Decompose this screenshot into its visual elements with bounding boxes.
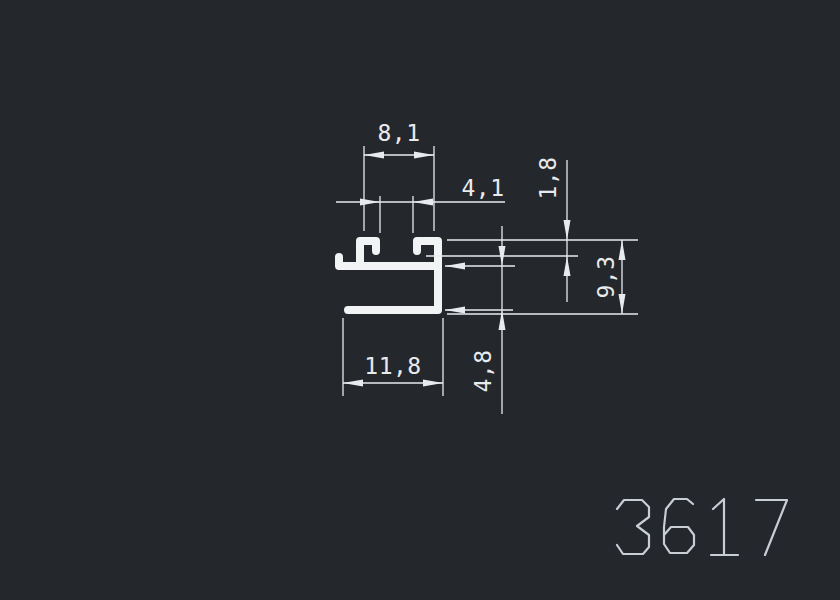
arrowhead-right-icon	[414, 152, 434, 159]
dimension-slot-opening: 4,1	[336, 175, 505, 233]
arrowhead-up-icon	[499, 310, 506, 330]
arrowhead-left-icon	[343, 380, 363, 387]
arrowhead-left-icon	[445, 263, 465, 270]
dim-label-overall-width: 11,8	[364, 353, 421, 379]
arrowhead-up-icon	[564, 256, 571, 276]
arrowhead-down-icon	[564, 220, 571, 240]
dim-label-slot-inner-width: 8,1	[377, 120, 420, 146]
profile-number-digit	[756, 500, 787, 555]
dimension-lower-cavity-height: 4,8	[445, 226, 515, 414]
profile-outline	[339, 241, 438, 310]
dimension-overall-width: 11,8	[343, 318, 443, 396]
dim-label-lower-cavity-height: 4,8	[470, 349, 496, 392]
dimension-slot-inner-width: 8,1	[364, 120, 434, 231]
dim-label-lip-height: 1,8	[535, 156, 561, 199]
profile-number-digit	[617, 500, 649, 554]
arrowhead-left-icon	[445, 307, 465, 314]
profile-number-digit	[664, 499, 694, 553]
profile-mid-bar	[339, 257, 438, 266]
dimension-overall-height: 9,3	[447, 240, 638, 314]
cad-drawing: 8,1 4,1 1,8 9,3 4,8	[0, 0, 840, 600]
profile-number-label	[617, 499, 787, 555]
arrowhead-left-icon	[360, 199, 380, 206]
arrowhead-right-icon	[423, 380, 443, 387]
arrowhead-down-icon	[619, 294, 626, 314]
cad-canvas: 8,1 4,1 1,8 9,3 4,8	[0, 0, 840, 600]
dim-label-overall-height: 9,3	[593, 255, 619, 298]
arrowhead-up-icon	[619, 240, 626, 260]
arrowhead-left-icon	[364, 152, 384, 159]
profile-number-digit	[713, 499, 724, 555]
dim-label-slot-opening: 4,1	[461, 175, 504, 201]
arrowhead-right-icon	[413, 199, 433, 206]
